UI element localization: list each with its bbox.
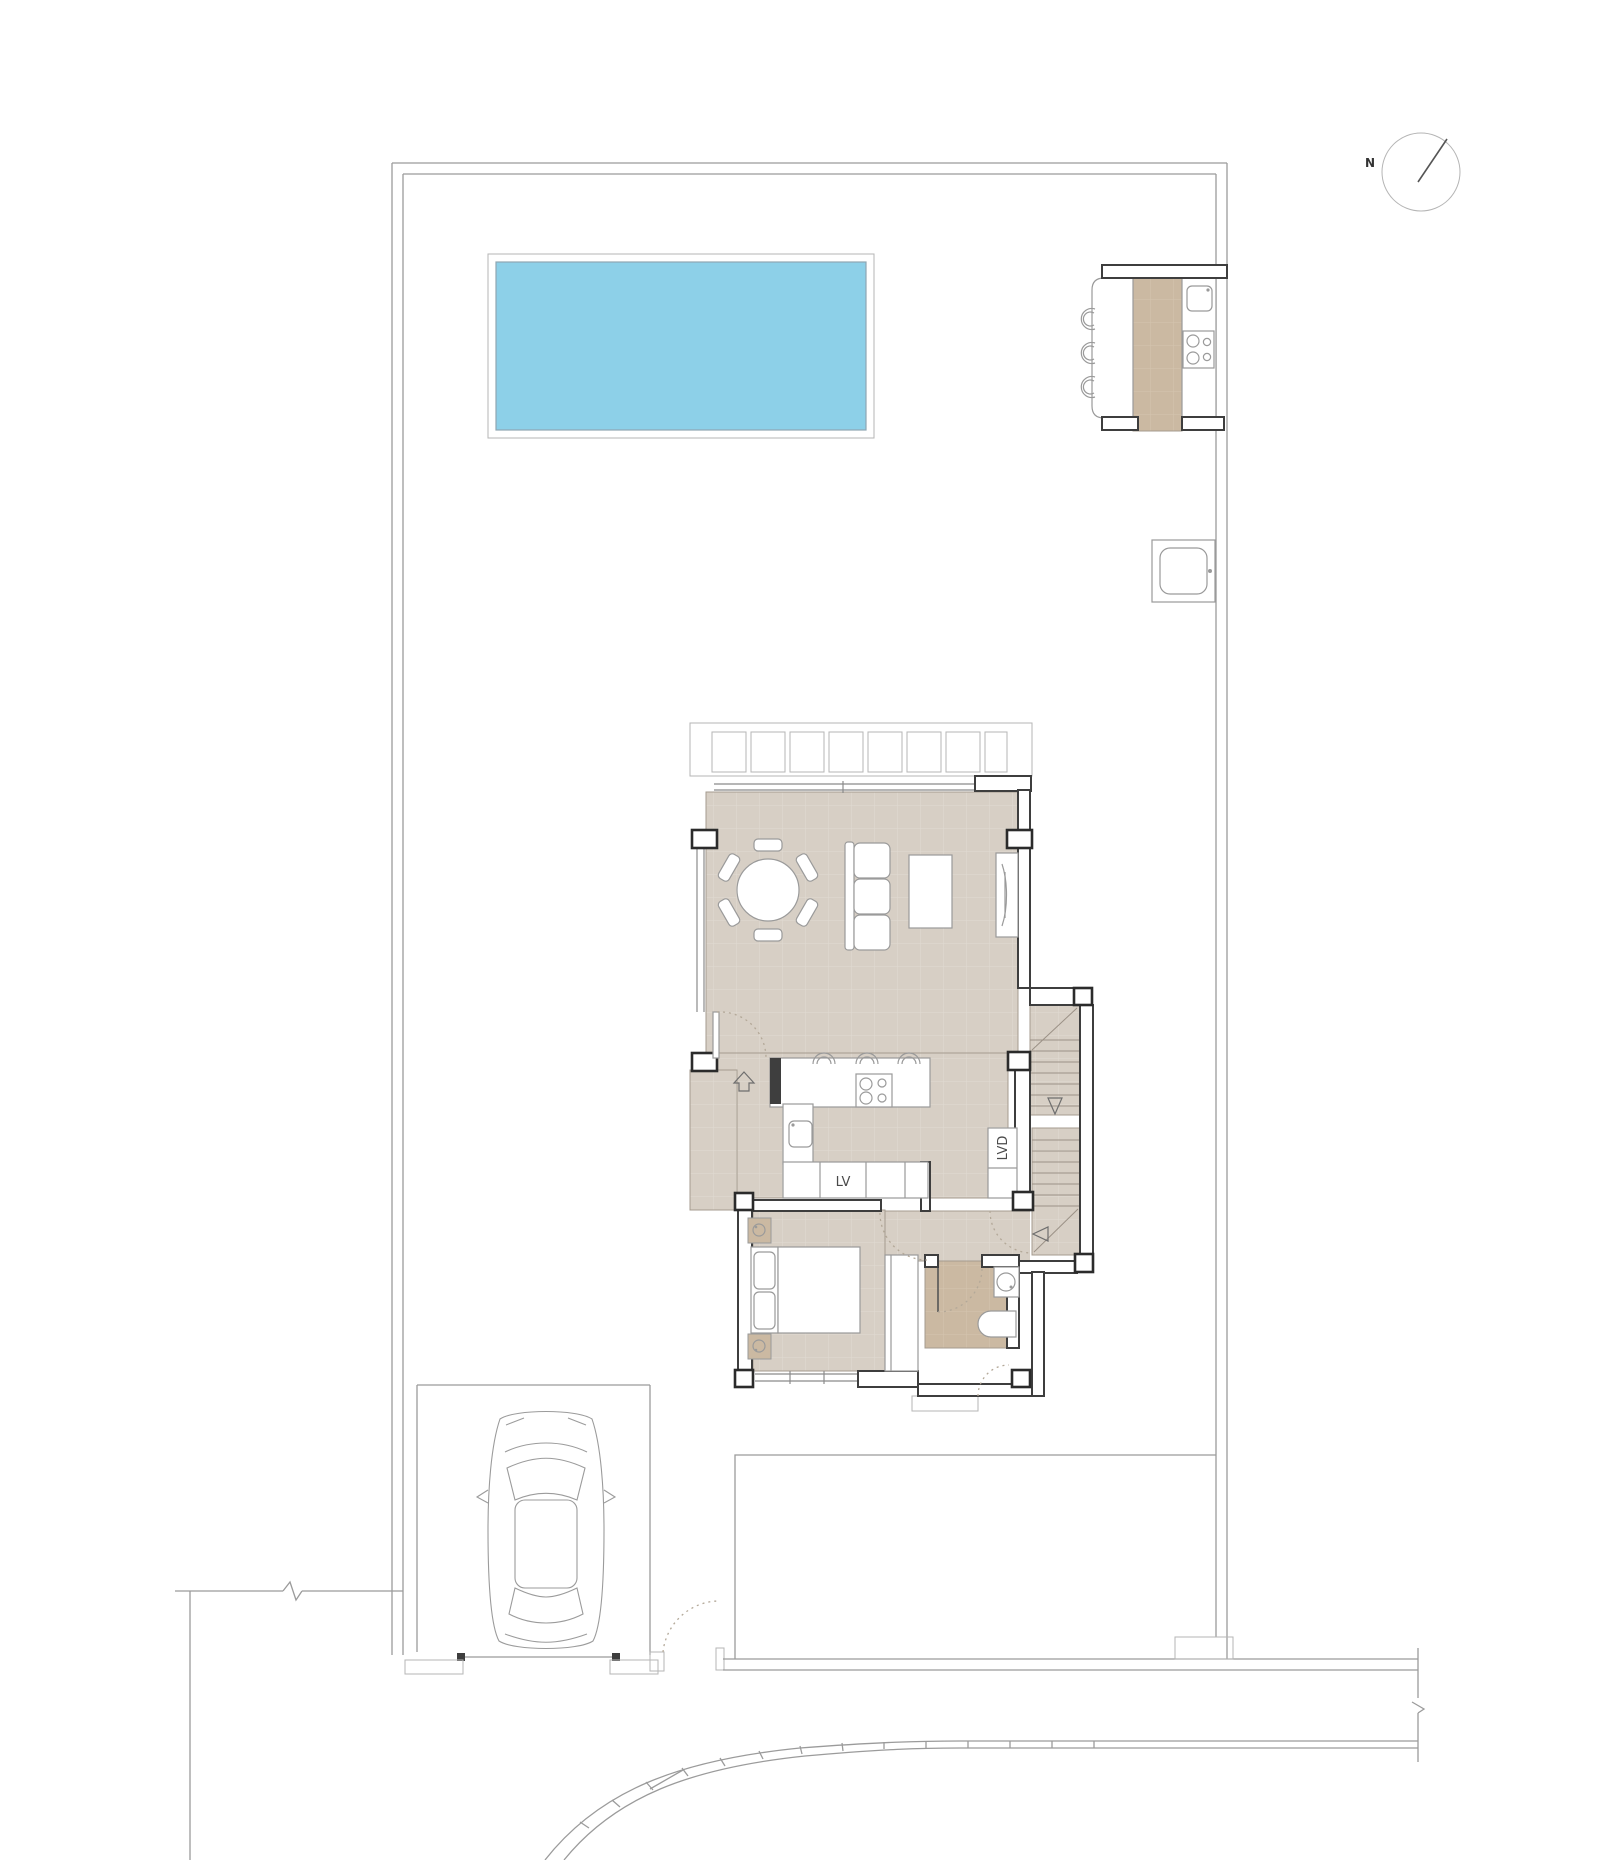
staircase: [1030, 1005, 1080, 1272]
bbq-wall-bottom-right: [1182, 417, 1224, 430]
mattress: [778, 1247, 860, 1333]
bbq-wall-top: [1102, 265, 1227, 278]
compass-circle: [1382, 133, 1460, 211]
dishwasher-label: LV: [836, 1175, 851, 1190]
wardrobe: [885, 1255, 918, 1371]
car-mirror: [604, 1490, 615, 1503]
pool-water: [496, 262, 866, 430]
entry-terrace-floor: [690, 1070, 737, 1210]
stairs-lower-flight: [1032, 1128, 1080, 1255]
pergola: [690, 723, 1032, 776]
coffee-table: [909, 855, 952, 928]
pillow: [754, 1252, 775, 1289]
wall-wing-east: [1032, 1272, 1044, 1396]
bbq-walkway: [1133, 278, 1182, 431]
wall-bathroom-north: [982, 1255, 1019, 1267]
entry-door-leaf: [713, 1012, 719, 1058]
bed: [751, 1247, 860, 1333]
wall-stair-top: [1030, 988, 1075, 1005]
kitchen-counter-south: [783, 1162, 928, 1198]
north-label: N: [1365, 156, 1375, 170]
kitchen-counter-west: [783, 1104, 813, 1164]
laundry-unit: LVD: [988, 1128, 1017, 1198]
wall-top-right: [975, 776, 1031, 791]
car-mirror: [477, 1490, 488, 1503]
cooktop-icon: [1183, 331, 1214, 368]
pedestrian-gate-swing: [663, 1601, 717, 1652]
north-compass: N: [1365, 133, 1460, 211]
break-mark-icon: [283, 1582, 302, 1600]
tv-unit: [996, 853, 1018, 937]
bar-counter: [1092, 278, 1133, 418]
wall-stair-right: [1080, 1005, 1093, 1255]
boundary-post: [1175, 1637, 1233, 1659]
nightstand: [748, 1334, 771, 1359]
washbasin-icon: [994, 1267, 1019, 1297]
car: [477, 1412, 615, 1649]
curb-joints: [580, 1741, 1094, 1828]
bbq-wall-bottom-left: [1102, 417, 1138, 430]
washer-label: LVD: [996, 1136, 1011, 1161]
road-curb: [545, 1741, 1418, 1860]
wall-bedroom-north: [753, 1200, 881, 1211]
outdoor-shower: [1152, 540, 1215, 602]
floor-plan-drawing: N: [0, 0, 1600, 1860]
nightstand: [748, 1218, 771, 1243]
break-mark-icon: [1412, 1702, 1424, 1713]
swimming-pool: [488, 254, 874, 438]
outdoor-kitchen: [1081, 265, 1227, 431]
site-bottom: [175, 1582, 1424, 1860]
wall-bedroom-south: [858, 1371, 918, 1387]
hob-icon: [856, 1074, 892, 1107]
kitchen-island: [770, 1058, 930, 1107]
bathtub-icon: [978, 1311, 1016, 1337]
floor-plan-page: N: [0, 0, 1600, 1860]
sofa: [845, 842, 890, 950]
patio-outline: [735, 1396, 1216, 1659]
dining-table: [737, 859, 799, 921]
pillow: [754, 1292, 775, 1329]
porch-step: [912, 1396, 978, 1411]
wall-east-living: [1018, 848, 1030, 988]
hall-floor: [882, 1211, 1032, 1261]
compass-needle-icon: [1418, 139, 1447, 182]
